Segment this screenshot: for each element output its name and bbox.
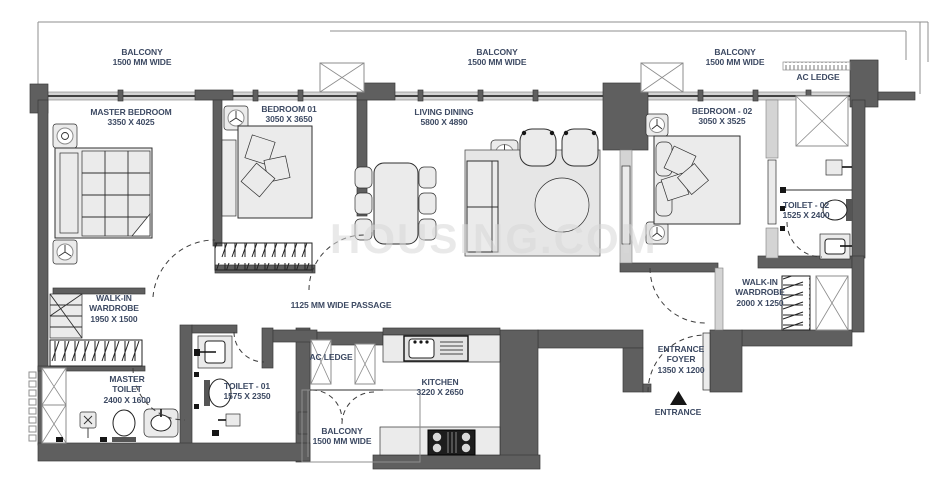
room-label-line: BALCONY: [706, 47, 765, 57]
wardrobe-rail: [215, 243, 312, 270]
sofa-icon: [467, 161, 498, 252]
room-label-line: 1950 X 1500: [89, 314, 139, 324]
bedroom-01-furniture: [215, 106, 312, 270]
floor-plan: HOUSING.COM BALCONY1500 MM WIDEBALCONY15…: [0, 0, 951, 492]
room-label-line: WALK-IN: [735, 277, 785, 287]
geyser-icon: [218, 414, 240, 426]
room-label-toilet-02: TOILET - 021525 X 2400: [782, 200, 829, 221]
room-label-line: 3050 X 3650: [261, 114, 316, 124]
ceiling-fan-icon: [53, 240, 77, 264]
room-label-line: 3050 X 3525: [692, 116, 752, 126]
room-label-line: 1500 MM WIDE: [113, 57, 172, 67]
washbasin-icon: [820, 234, 852, 259]
wc-icon: [112, 410, 136, 442]
wardrobe-rail: [782, 276, 810, 330]
shower-icon: [80, 412, 96, 438]
room-label-ac-ledge-bottom: AC LEDGE: [309, 352, 352, 362]
room-label-line: 1575 X 2350: [223, 391, 270, 401]
bedside-table: [222, 140, 236, 216]
room-label-bedroom-02: BEDROOM - 023050 X 3525: [692, 106, 752, 127]
room-label-line: FOYER: [657, 354, 704, 364]
room-label-entrance: ENTRANCE: [655, 407, 701, 417]
ceiling-fan-icon: [646, 222, 668, 244]
room-label-line: BALCONY: [313, 426, 372, 436]
room-label-balcony-top-right: BALCONY1500 MM WIDE: [706, 47, 765, 68]
room-label-bedroom-01: BEDROOM 013050 X 3650: [261, 104, 316, 125]
room-label-line: WALK-IN: [89, 293, 139, 303]
room-label-line: WARDROBE: [735, 287, 785, 297]
room-label-line: 1125 MM WIDE PASSAGE: [291, 300, 392, 310]
room-label-line: 1350 X 1200: [657, 365, 704, 375]
bedroom-02-furniture: [646, 114, 740, 244]
room-label-line: BALCONY: [468, 47, 527, 57]
room-label-balcony-top-left: BALCONY1500 MM WIDE: [113, 47, 172, 68]
bed-icon: [55, 148, 152, 238]
dining-table-icon: [355, 163, 436, 244]
room-label-line: ENTRANCE: [655, 407, 701, 417]
room-label-line: TOILET - 01: [223, 381, 270, 391]
ceiling-fan-icon: [646, 114, 668, 136]
ceiling-fan-icon: [53, 124, 77, 148]
room-label-line: 1500 MM WIDE: [706, 57, 765, 67]
room-label-line: 3220 X 2650: [416, 387, 463, 397]
room-label-entrance-foyer: ENTRANCEFOYER1350 X 1200: [657, 344, 704, 375]
entrance-arrow-icon: [670, 391, 687, 405]
room-label-line: TOILET: [103, 384, 150, 394]
room-label-line: BEDROOM 01: [261, 104, 316, 114]
room-label-balcony-bottom: BALCONY1500 MM WIDE: [313, 426, 372, 447]
room-label-kitchen: KITCHEN3220 X 2650: [416, 377, 463, 398]
room-label-walk-in-wardrobe-2: WALK-INWARDROBE2000 X 1250: [735, 277, 785, 308]
room-label-line: 1525 X 2400: [782, 210, 829, 220]
room-label-walk-in-wardrobe-1: WALK-INWARDROBE1950 X 1500: [89, 293, 139, 324]
room-label-master-bedroom: MASTER BEDROOM3350 X 4025: [90, 107, 171, 128]
bed-icon: [654, 136, 740, 224]
room-label-line: TOILET - 02: [782, 200, 829, 210]
bed-icon: [238, 126, 312, 218]
hob-icon: [428, 430, 475, 455]
armchair-icon: [562, 129, 598, 166]
wardrobe-rail: [50, 340, 142, 366]
room-label-line: ENTRANCE: [657, 344, 704, 354]
room-label-line: 3350 X 4025: [90, 117, 171, 127]
room-label-living-dining: LIVING DINING5800 X 4890: [414, 107, 473, 128]
room-label-line: MASTER: [103, 374, 150, 384]
room-label-line: KITCHEN: [416, 377, 463, 387]
room-label-master-toilet: MASTERTOILET2400 X 1600: [103, 374, 150, 405]
armchair-icon: [520, 129, 556, 166]
room-label-line: AC LEDGE: [309, 352, 352, 362]
room-label-line: BALCONY: [113, 47, 172, 57]
coffee-table-icon: [535, 178, 589, 232]
room-label-line: 1500 MM WIDE: [313, 436, 372, 446]
room-label-line: WARDROBE: [89, 303, 139, 313]
master-bedroom-furniture: [53, 124, 152, 264]
living-dining-furniture: [355, 129, 630, 256]
room-label-line: MASTER BEDROOM: [90, 107, 171, 117]
washbasin-icon: [194, 336, 232, 368]
room-label-line: 1500 MM WIDE: [468, 57, 527, 67]
room-label-passage: 1125 MM WIDE PASSAGE: [291, 300, 392, 310]
room-label-line: LIVING DINING: [414, 107, 473, 117]
washbasin-icon: [144, 409, 178, 437]
room-label-line: 2400 X 1600: [103, 395, 150, 405]
room-label-balcony-top-center: BALCONY1500 MM WIDE: [468, 47, 527, 68]
room-label-line: 2000 X 1250: [735, 298, 785, 308]
room-label-ac-ledge-top-right: AC LEDGE: [796, 72, 839, 82]
mirror-icon: [826, 160, 852, 175]
room-label-line: BEDROOM - 02: [692, 106, 752, 116]
window-band: [48, 90, 878, 101]
room-label-line: AC LEDGE: [796, 72, 839, 82]
tv-unit: [622, 166, 630, 244]
door-leaf: [768, 160, 776, 224]
room-label-line: 5800 X 4890: [414, 117, 473, 127]
sink-icon: [404, 336, 468, 361]
room-label-toilet-01: TOILET - 011575 X 2350: [223, 381, 270, 402]
